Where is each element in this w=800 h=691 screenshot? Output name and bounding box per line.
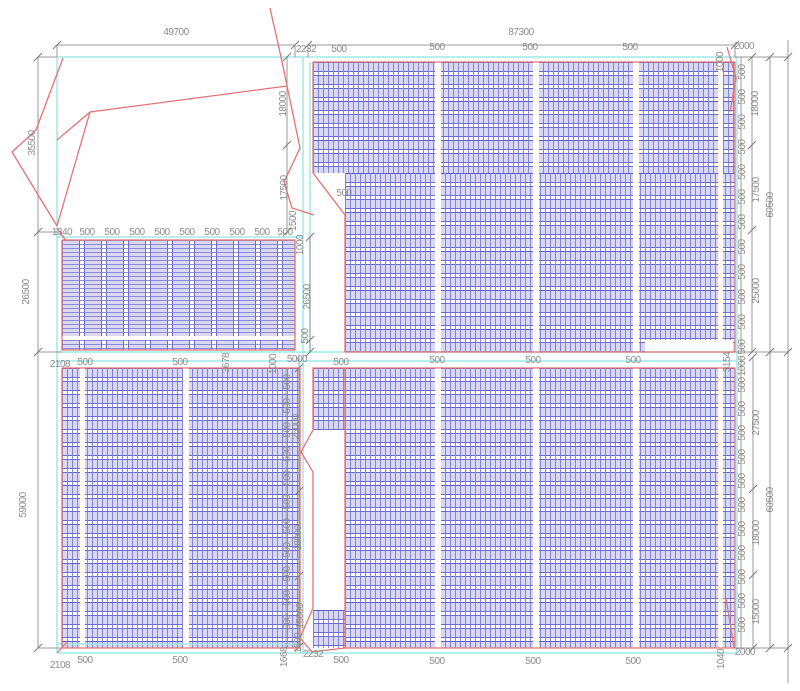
dim-label: 1000 — [738, 356, 748, 376]
dim-label: 500 — [77, 358, 92, 368]
dim-label: 500 — [738, 114, 748, 129]
dim-label: 500 — [738, 569, 748, 584]
dim-label: 500 — [738, 339, 748, 354]
dim-label: 18000 — [279, 91, 289, 116]
dim-label: 15000 — [752, 599, 762, 624]
dim-label: 17500 — [752, 177, 762, 202]
dim-label: 26500 — [303, 284, 313, 309]
array-corridor — [718, 62, 723, 352]
dim-label: 500 — [333, 656, 348, 666]
dim-label: 500 — [738, 497, 748, 512]
dim-label: 500 — [79, 228, 94, 238]
dim-label: 500 — [283, 590, 293, 605]
dim-label: 500 — [738, 593, 748, 608]
dim-label: 18000 — [751, 91, 761, 116]
dim-label: 500 — [333, 358, 348, 368]
dim-label: 500 — [738, 89, 748, 104]
dim-label: 500 — [129, 228, 144, 238]
dim-label: 1000 — [296, 235, 306, 255]
dim-label: 2232 — [296, 45, 316, 55]
dim-label: 27500 — [752, 410, 762, 435]
array-mid-left — [62, 240, 295, 350]
dim-label: 35500 — [28, 130, 38, 155]
dim-label: 500 — [738, 377, 748, 392]
dim-label: 26000 — [292, 414, 302, 439]
array-corridor — [435, 368, 441, 648]
array-corridor — [435, 62, 441, 352]
dim-label: 500 — [738, 401, 748, 416]
dim-label: 500 — [738, 289, 748, 304]
dim-label: 500 — [738, 164, 748, 179]
dim-label: 500 — [283, 422, 293, 437]
dim-label: 500 — [738, 314, 748, 329]
red-boundary-line — [270, 8, 314, 215]
array-corridor — [62, 336, 295, 340]
dim-label: 500 — [625, 657, 640, 667]
red-boundary-line — [57, 86, 287, 140]
dim-label: 15000 — [296, 603, 306, 628]
dim-label: 25000 — [752, 278, 762, 303]
array-corridor — [633, 62, 639, 352]
dim-label: 500 — [154, 228, 169, 238]
dim-label: 1000 — [269, 354, 279, 374]
dim-label: 1668 — [280, 647, 290, 667]
dim-label: 500 — [179, 228, 194, 238]
dim-label: 500 — [738, 449, 748, 464]
dim-label: 17500 — [280, 175, 290, 200]
dim-label: 1340 — [52, 228, 72, 238]
dim-label: 18000 — [294, 525, 304, 550]
dim-label: 2000 — [734, 42, 754, 52]
dim-label: 60500 — [766, 487, 776, 512]
array-bottom-right-left-strip-top — [313, 368, 345, 430]
dim-label: 3154 — [723, 352, 733, 372]
dim-label: 500 — [172, 358, 187, 368]
dim-label: 60500 — [766, 192, 776, 217]
dim-label: 500 — [522, 43, 537, 53]
dim-label: 500 — [283, 518, 293, 533]
array-bottom-left — [62, 368, 300, 648]
dim-label: 500 — [283, 470, 293, 485]
dim-label: 1000 — [716, 52, 726, 72]
dim-label: 500 — [738, 264, 748, 279]
dim-label: 26500 — [22, 279, 32, 304]
dim-label: 500 — [622, 43, 637, 53]
dim-label: 500 — [738, 545, 748, 560]
dim-label: 500 — [738, 425, 748, 440]
dim-label: 500 — [104, 228, 119, 238]
dim-label: 500 — [738, 214, 748, 229]
dim-label: 500 — [283, 398, 293, 413]
array-corridor — [533, 62, 539, 352]
dim-label: 500 — [738, 473, 748, 488]
dim-label: 500 — [429, 43, 444, 53]
dim-label: 500 — [429, 356, 444, 366]
dim-label: 500 — [277, 228, 292, 238]
dim-label: 500 — [738, 139, 748, 154]
dim-label: 1040 — [717, 649, 727, 669]
array-corridor — [183, 368, 189, 648]
array-corridor — [718, 368, 723, 648]
dim-label: 87300 — [508, 28, 533, 38]
array-bottom-right-left-strip-bottom — [313, 610, 345, 648]
dim-label: 3678 — [222, 353, 232, 373]
dim-label: 500 — [738, 239, 748, 254]
array-corridor — [633, 368, 639, 648]
array-bottom-right — [345, 368, 735, 648]
dim-label: 500 — [283, 494, 293, 509]
dim-label: 500 — [77, 656, 92, 666]
cad-canvas: 4970087300223250050050050010002000180001… — [0, 0, 800, 691]
array-top-right-lower — [345, 173, 735, 352]
dim-label: 500 — [625, 356, 640, 366]
array-top-right-upper — [313, 62, 735, 173]
array-corridor — [80, 368, 85, 648]
dim-label: 500 — [336, 189, 351, 199]
dim-label: 500 — [738, 189, 748, 204]
dim-label: 500 — [525, 356, 540, 366]
dim-label: 500 — [283, 446, 293, 461]
array-corridor — [645, 340, 733, 352]
dim-label: 500 — [525, 657, 540, 667]
dim-label: 500 — [738, 64, 748, 79]
dim-label: 18000 — [752, 520, 762, 545]
dim-label: 500 — [204, 228, 219, 238]
dim-label: 500 — [283, 614, 293, 629]
dim-label: 59000 — [19, 492, 29, 517]
dim-label: 2108 — [50, 661, 70, 671]
dim-label: 49700 — [163, 28, 188, 38]
dim-label: 500 — [738, 521, 748, 536]
dim-label: 500 — [283, 374, 293, 389]
dim-label: 2000 — [735, 648, 755, 658]
dim-label: 500 — [254, 228, 269, 238]
dim-label: 500 — [429, 657, 444, 667]
dim-label: 500 — [331, 45, 346, 55]
dim-label: 500 — [172, 656, 187, 666]
dim-label: 500 — [301, 328, 311, 343]
dim-label: 500 — [738, 617, 748, 632]
dim-label: 500 — [229, 228, 244, 238]
dim-label: 2232 — [303, 650, 323, 660]
array-corridor — [533, 368, 539, 648]
dim-label: 5000 — [287, 355, 307, 365]
dim-label: 2108 — [50, 360, 70, 370]
dim-label: 500 — [283, 542, 293, 557]
dim-label: 500 — [283, 566, 293, 581]
red-boundary-line — [57, 112, 90, 226]
